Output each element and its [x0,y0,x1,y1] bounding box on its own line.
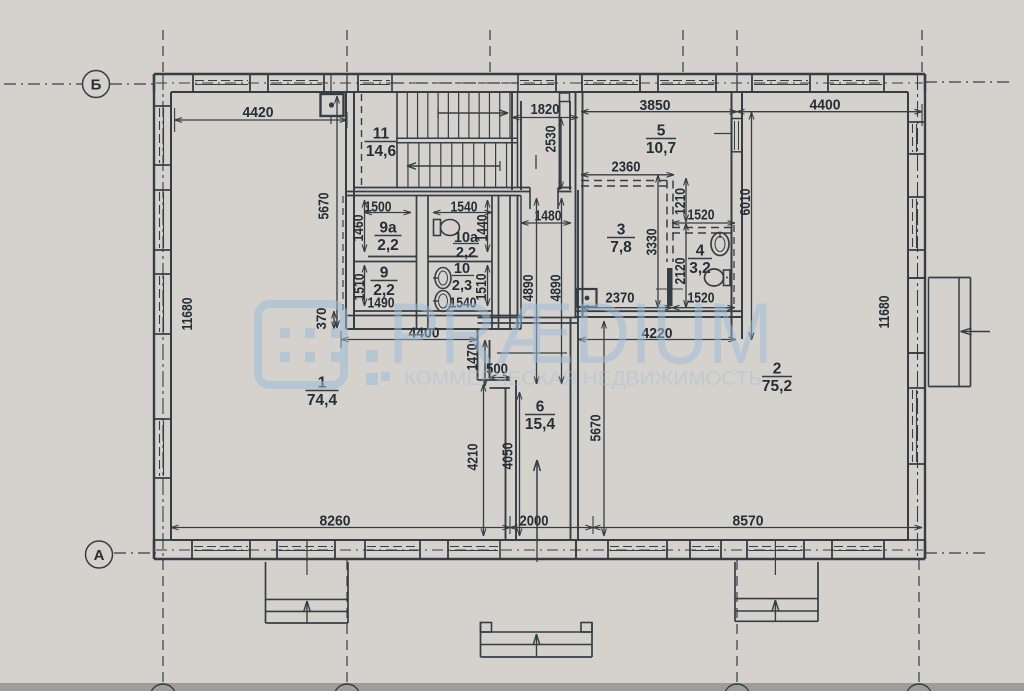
svg-text:4210: 4210 [466,444,482,471]
svg-text:11: 11 [373,125,390,142]
svg-text:4: 4 [696,242,705,259]
svg-text:11680: 11680 [877,296,893,329]
svg-text:14,6: 14,6 [366,143,397,160]
svg-text:4420: 4420 [243,104,274,121]
svg-text:5670: 5670 [317,193,333,220]
svg-text:9а: 9а [379,219,397,236]
svg-text:2,2: 2,2 [377,237,399,254]
svg-text:8570: 8570 [733,512,764,529]
svg-text:2530: 2530 [544,126,560,153]
svg-text:3: 3 [617,221,626,238]
svg-text:4050: 4050 [501,443,517,470]
svg-text:1440: 1440 [475,215,491,242]
svg-text:370: 370 [313,307,329,329]
svg-text:9: 9 [380,264,389,281]
svg-text:2120: 2120 [673,258,689,285]
svg-text:4400: 4400 [810,96,841,113]
svg-text:2000: 2000 [520,512,549,529]
svg-text:10,7: 10,7 [646,140,676,157]
svg-text:2360: 2360 [612,160,641,176]
svg-text:1480: 1480 [535,209,562,225]
svg-text:А: А [94,547,105,564]
svg-text:6: 6 [536,398,545,415]
svg-text:15,4: 15,4 [525,416,556,433]
svg-text:1820: 1820 [531,101,560,118]
svg-text:10: 10 [454,261,470,277]
svg-text:5: 5 [657,122,666,139]
svg-text:3330: 3330 [645,229,661,256]
svg-text:3850: 3850 [640,97,671,114]
svg-text:2: 2 [773,360,782,377]
svg-text:1500: 1500 [365,200,392,216]
svg-text:6010: 6010 [738,189,754,216]
svg-text:КОММЕРЧЕСКАЯ НЕДВИЖИМОСТЬ: КОММЕРЧЕСКАЯ НЕДВИЖИМОСТЬ [404,367,762,390]
svg-text:2,2: 2,2 [456,245,476,261]
svg-text:Б: Б [91,76,102,93]
svg-text:7,8: 7,8 [610,239,632,256]
svg-text:74,4: 74,4 [307,392,338,409]
svg-text:5670: 5670 [589,415,605,442]
svg-text:8260: 8260 [320,512,351,529]
svg-text:1540: 1540 [451,200,478,216]
svg-text:1510: 1510 [352,274,368,301]
svg-text:3,2: 3,2 [689,260,711,277]
svg-text:1460: 1460 [351,215,367,242]
svg-text:1520: 1520 [688,208,715,224]
svg-text:11680: 11680 [180,298,196,331]
